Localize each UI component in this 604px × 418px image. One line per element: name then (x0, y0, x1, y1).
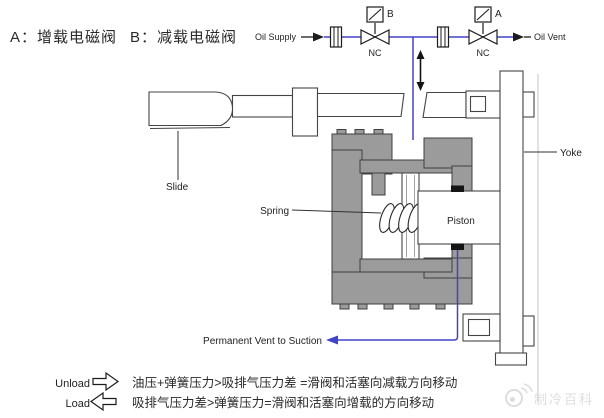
slide-rod (423, 93, 466, 118)
piston-label: Piston (447, 216, 475, 227)
watermark-text: 制冷百科 (534, 392, 594, 407)
yoke-label: Yoke (560, 148, 582, 159)
piston-seal-bottom (451, 244, 464, 251)
unload-label: Unload (55, 378, 90, 390)
yoke-boss-top (523, 92, 534, 117)
filter-orifice-icon (331, 27, 342, 47)
body-left-wall (332, 150, 362, 292)
body-bottom-wall (360, 259, 452, 272)
solenoid-a-tag: A (495, 9, 502, 20)
flow-arrow-icon (313, 33, 324, 42)
weibo-logo-icon (506, 384, 532, 406)
movement-legend: Unload 油压+弹簧压力>吸排气压力差 =滑阀和活塞向减载方向移动 Load… (55, 373, 457, 410)
solenoid-valve-a: A NC (469, 7, 502, 58)
solenoid-b-tag: B (387, 9, 394, 20)
bidirectional-arrow-icon (417, 50, 425, 91)
yoke-foot (496, 353, 527, 365)
solenoid-a-state: NC (477, 48, 490, 58)
solenoid-valve-b: B NC (361, 7, 394, 58)
yoke-plate (500, 71, 523, 355)
body-top-right-block (424, 138, 472, 168)
yoke-bottom-boss (469, 320, 490, 336)
solenoid-b-state: NC (369, 48, 382, 58)
rod-connector-block (293, 88, 318, 136)
load-rule-text: 吸排气压力差>弹簧压力=滑阀和活塞向增载的方向移动 (132, 395, 434, 410)
shutoff-valve-icon (469, 30, 483, 44)
slide-edge-line (150, 128, 230, 129)
slide-rod (233, 96, 293, 118)
valve-a-legend-text: A：增载电磁阀 (10, 29, 117, 46)
shutoff-valve-icon (483, 30, 497, 44)
rod-end-boss (471, 97, 486, 112)
yoke-boss-bottom (523, 316, 534, 346)
unload-rule-text: 油压+弹簧压力>吸排气压力差 =滑阀和活塞向减载方向移动 (132, 375, 457, 390)
slide-rod (318, 94, 405, 117)
block-arrow-right-icon (93, 373, 118, 390)
compressor-slide-valve-diagram: A：增载电磁阀 B：减载电磁阀 Oil Supply B NC (0, 0, 604, 418)
shutoff-valve-icon (375, 30, 389, 44)
block-arrow-left-icon (91, 393, 116, 410)
shutoff-valve-icon (361, 30, 375, 44)
diagram-svg: A：增载电磁阀 B：减载电磁阀 Oil Supply B NC (0, 0, 604, 418)
slide-valve-body (149, 92, 233, 126)
flow-arrow-icon (513, 33, 524, 42)
permanent-vent-label: Permanent Vent to Suction (203, 336, 322, 347)
filter-orifice-icon (438, 27, 449, 47)
spring-label: Spring (260, 206, 289, 217)
valve-b-legend-text: B：减载电磁阀 (130, 29, 237, 46)
spring-anchor-tab (372, 173, 385, 195)
oil-supply-label: Oil Supply (255, 32, 297, 42)
vent-arrow-icon (326, 336, 338, 345)
slide-label: Slide (166, 182, 189, 193)
valve-body-section: Spring Piston (260, 130, 502, 310)
watermark: 制冷百科 (506, 384, 594, 407)
piston-seal-top (451, 186, 464, 193)
oil-vent-label: Oil Vent (534, 32, 566, 42)
load-label: Load (66, 398, 90, 410)
